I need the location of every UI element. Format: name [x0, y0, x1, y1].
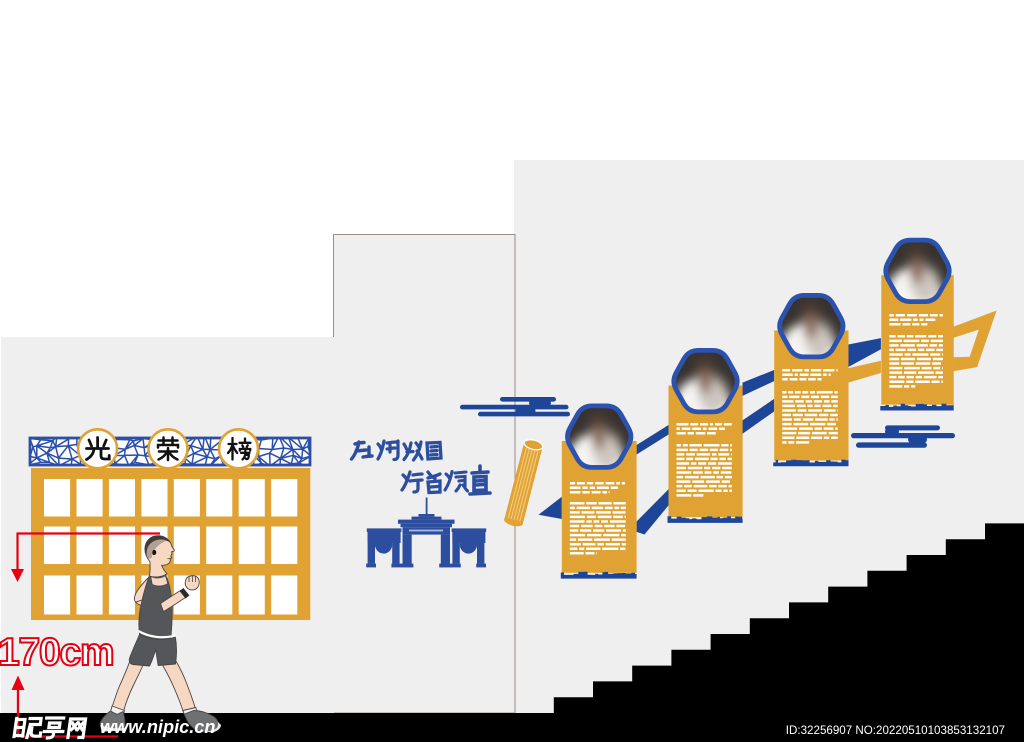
svg-text:www.nipic.cn: www.nipic.cn [100, 717, 216, 737]
svg-text:ID:32256907 NO:202205101038531: ID:32256907 NO:20220510103853132107 [786, 724, 1005, 737]
svg-text:170cm: 170cm [0, 631, 113, 674]
